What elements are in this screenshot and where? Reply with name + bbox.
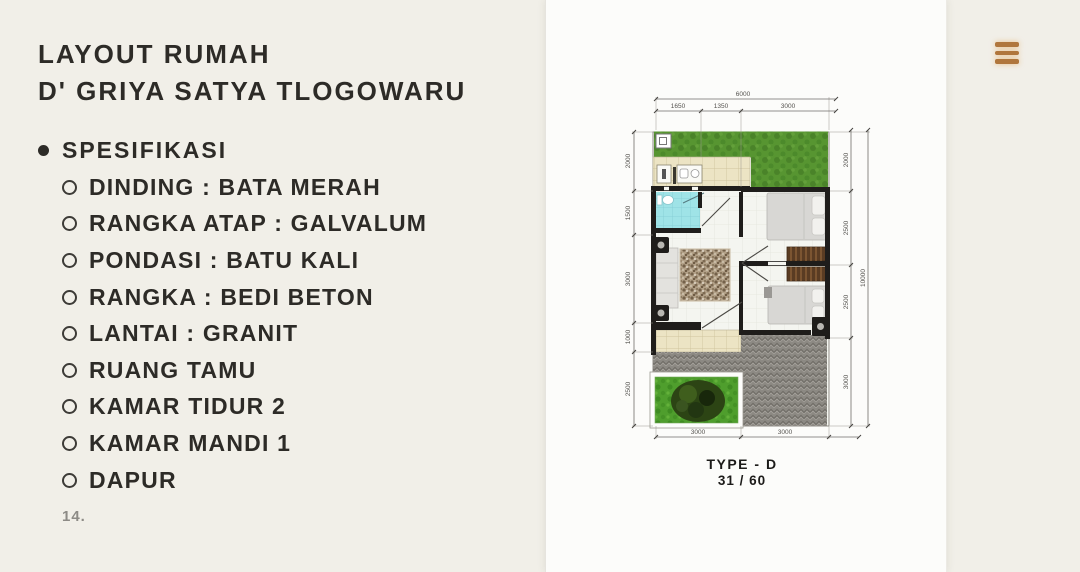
dim-label: 3000 [781, 103, 796, 110]
dim-label: 1500 [625, 205, 632, 220]
spec-heading-row: SPESIFIKASI [38, 137, 528, 163]
menu-bar [995, 42, 1019, 47]
toilet-icon [663, 196, 674, 205]
spec-item-label: DINDING : BATA MERAH [89, 174, 381, 201]
bullet-circle-icon [62, 216, 77, 231]
bullet-circle-icon [62, 436, 77, 451]
spec-list: DINDING : BATA MERAH RANGKA ATAP : GALVA… [38, 169, 528, 498]
title-line-2: D' GRIYA SATYA TLOGOWARU [38, 73, 528, 110]
spec-item-label: RANGKA ATAP : GALVALUM [89, 210, 427, 237]
bathroom [654, 192, 704, 231]
bullet-circle-icon [62, 290, 77, 305]
bullet-circle-icon [62, 180, 77, 195]
dim-label: 2000 [843, 152, 850, 167]
wardrobe-2 [787, 267, 829, 281]
list-item: KAMAR TIDUR 2 [62, 389, 528, 426]
spec-item-label: DAPUR [89, 467, 177, 494]
list-item: DINDING : BATA MERAH [62, 169, 528, 206]
plan-caption: TYPE - D 31 / 60 [642, 456, 842, 488]
spec-item-label: LANTAI : GRANIT [89, 320, 298, 347]
dim-label: 6000 [736, 91, 751, 98]
page-title: LAYOUT RUMAH D' GRIYA SATYA TLOGOWARU [38, 36, 528, 110]
dim-label: 1000 [625, 329, 632, 344]
list-item: RANGKA ATAP : GALVALUM [62, 206, 528, 243]
menu-bar [995, 59, 1019, 64]
terrace [656, 330, 741, 352]
bullet-circle-icon [62, 473, 77, 488]
bullet-dot-icon [38, 145, 49, 156]
specs-panel: LAYOUT RUMAH D' GRIYA SATYA TLOGOWARU SP… [38, 36, 528, 498]
dim-label: 1650 [671, 103, 686, 110]
washing-machine [656, 134, 671, 148]
dim-label: 10000 [860, 269, 867, 287]
dim-label: 2000 [625, 153, 632, 168]
dim-label: 2500 [843, 220, 850, 235]
spec-item-label: PONDASI : BATU KALI [89, 247, 359, 274]
bullet-circle-icon [62, 363, 77, 378]
dim-label: 3000 [625, 271, 632, 286]
plan-size-label: 31 / 60 [642, 473, 842, 488]
page-number: 14. [62, 508, 86, 525]
title-line-1: LAYOUT RUMAH [38, 36, 528, 73]
spec-item-label: KAMAR TIDUR 2 [89, 393, 286, 420]
dim-label: 1350 [714, 103, 729, 110]
bullet-circle-icon [62, 399, 77, 414]
list-item: RUANG TAMU [62, 352, 528, 389]
dim-label: 2500 [843, 294, 850, 309]
wardrobe-1 [787, 247, 829, 261]
bed-1 [767, 193, 829, 240]
bullet-circle-icon [62, 326, 77, 341]
pillow [812, 218, 825, 235]
pillow [812, 196, 825, 215]
dim-label: 3000 [843, 374, 850, 389]
spec-item-label: RUANG TAMU [89, 357, 256, 384]
dim-label: 3000 [691, 429, 706, 436]
front-garden [650, 372, 743, 428]
list-item: KAMAR MANDI 1 [62, 425, 528, 462]
kitchen-counter [653, 157, 750, 187]
nightstand [764, 287, 772, 298]
pillow [812, 289, 824, 303]
sofa [656, 248, 678, 308]
floorplan-card: 6000 1650 1350 3000 2000 1500 3000 1000 … [545, 0, 947, 572]
dim-label: 2500 [625, 381, 632, 396]
bush-icon [671, 380, 725, 422]
list-item: DAPUR [62, 462, 528, 499]
list-item: LANTAI : GRANIT [62, 315, 528, 352]
hamburger-menu-icon[interactable] [993, 39, 1021, 67]
menu-bar [995, 51, 1019, 56]
plan-type-label: TYPE - D [642, 456, 842, 472]
rug [680, 249, 730, 301]
list-item: RANGKA : BEDI BETON [62, 279, 528, 316]
spec-item-label: KAMAR MANDI 1 [89, 430, 291, 457]
spec-heading-label: SPESIFIKASI [62, 137, 227, 164]
spec-item-label: RANGKA : BEDI BETON [89, 284, 374, 311]
dim-label: 3000 [778, 429, 793, 436]
list-item: PONDASI : BATU KALI [62, 242, 528, 279]
bullet-circle-icon [62, 253, 77, 268]
